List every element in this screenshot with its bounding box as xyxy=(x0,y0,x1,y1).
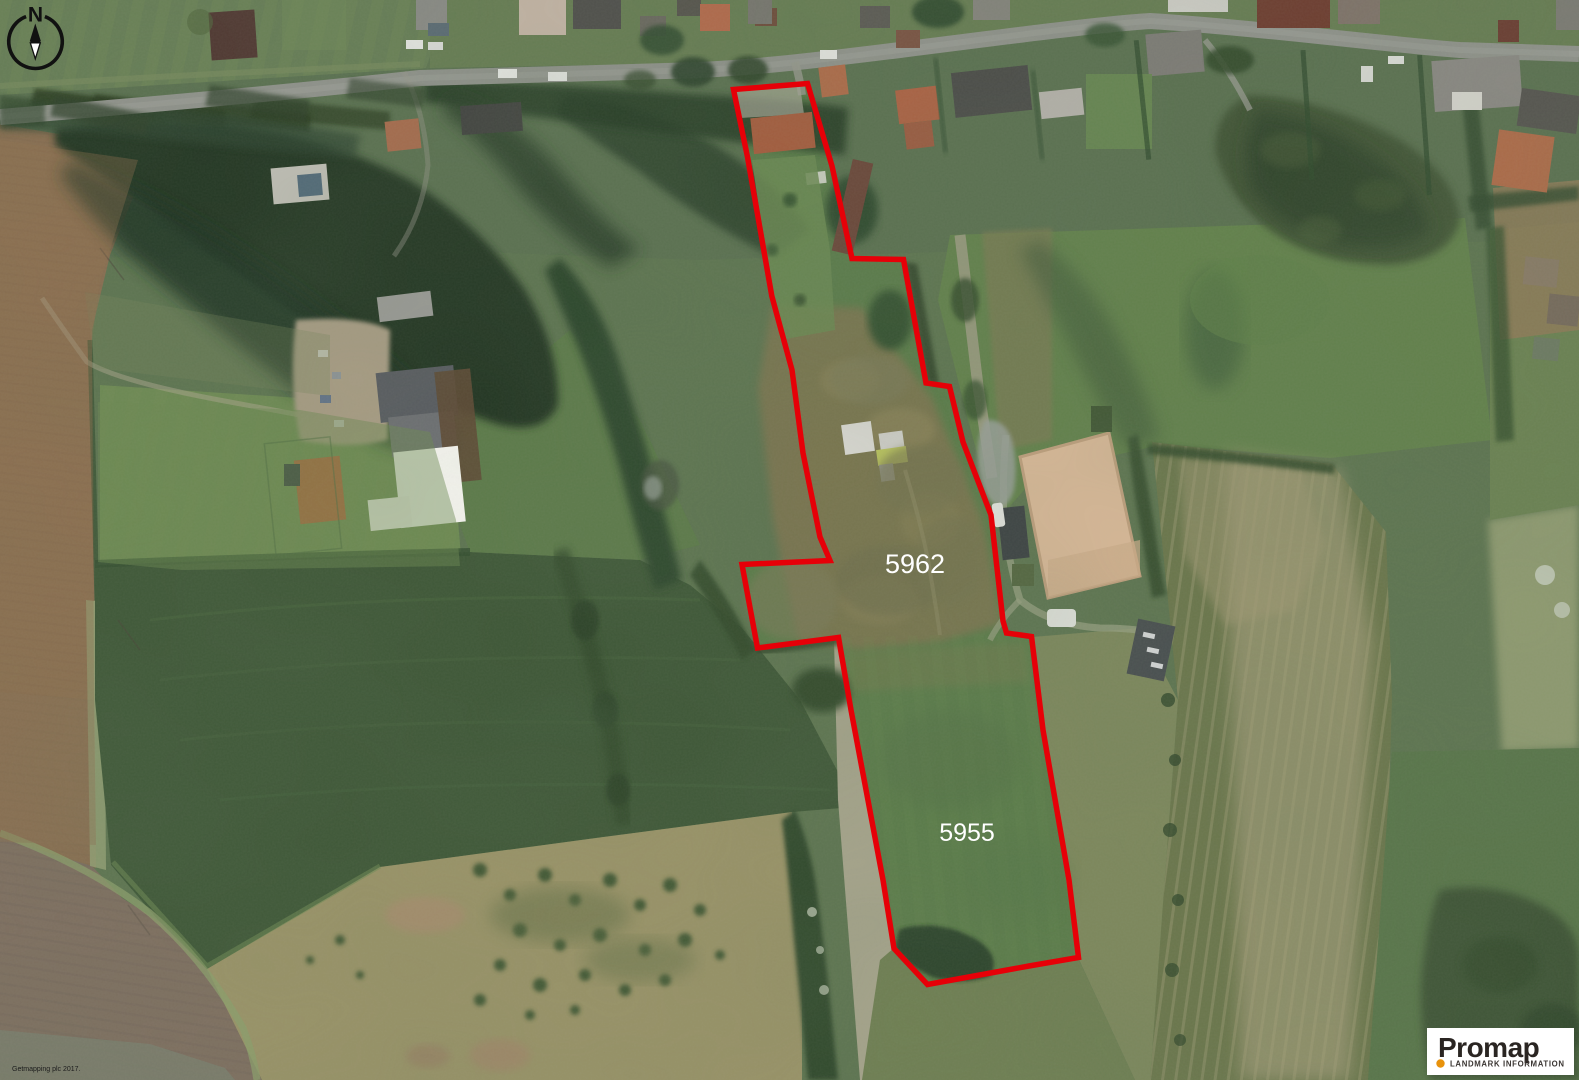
svg-text:5955: 5955 xyxy=(939,819,995,847)
svg-text:Promap: Promap xyxy=(1438,1032,1539,1063)
svg-text:N: N xyxy=(28,4,43,27)
svg-text:Getmapping plc 2017.: Getmapping plc 2017. xyxy=(12,1066,81,1073)
svg-text:LANDMARK INFORMATION: LANDMARK INFORMATION xyxy=(1450,1060,1565,1069)
svg-text:5962: 5962 xyxy=(885,549,945,579)
